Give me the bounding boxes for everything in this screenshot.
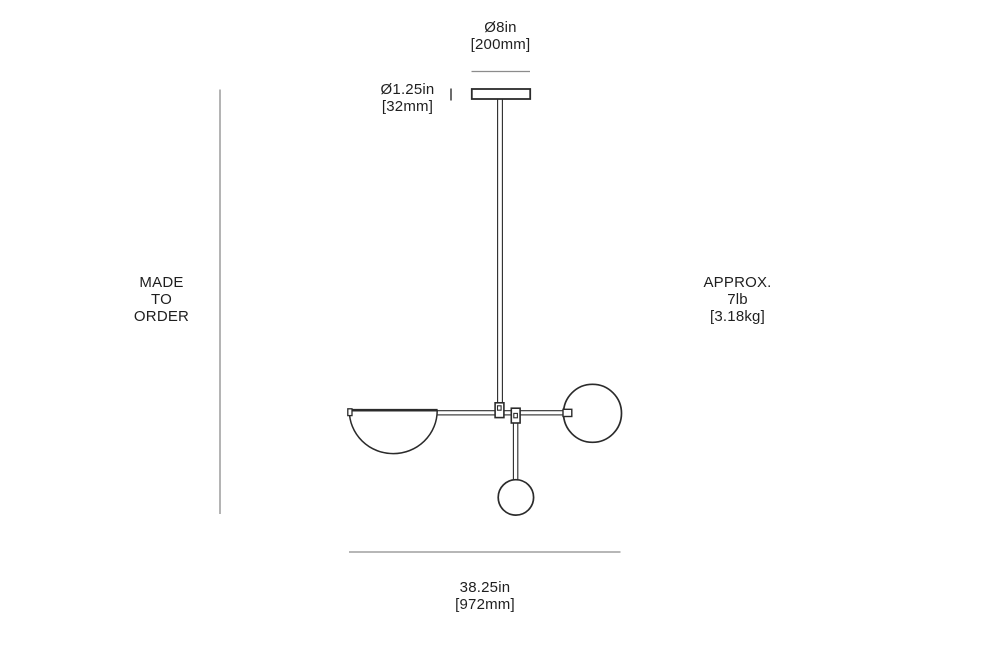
made-to-order-label: MADE TO ORDER [134,274,189,325]
weight-line1: APPROX. [703,274,771,291]
made-to-order-line1: MADE [134,274,189,291]
stem-diameter-metric: [32mm] [381,98,435,115]
stem-rod [498,99,503,404]
bowl-rim-end-cap [348,409,352,416]
upper-connector-hole [498,406,502,410]
overall-width-label: 38.25in [972mm] [455,579,515,613]
ceiling-canopy [472,89,530,99]
drop-rod [513,422,517,481]
lower-connector-hole [514,413,518,417]
line-drawing [0,0,1000,666]
small-globe-shade [498,480,533,515]
arm-end-cap [563,409,572,416]
pendant-fixture [348,89,622,515]
overall-width-inches: 38.25in [455,579,515,596]
canopy-diameter-metric: [200mm] [471,36,531,53]
bowl-shade [349,411,437,454]
made-to-order-line3: ORDER [134,308,189,325]
stem-diameter-label: Ø1.25in [32mm] [381,81,435,115]
canopy-diameter-label: Ø8in [200mm] [471,19,531,53]
weight-label: APPROX. 7lb [3.18kg] [703,274,771,325]
pendant-lamp-dimension-diagram: Ø8in [200mm] Ø1.25in [32mm] MADE TO ORDE… [0,0,1000,666]
weight-line3: [3.18kg] [703,308,771,325]
made-to-order-line2: TO [134,291,189,308]
overall-width-metric: [972mm] [455,596,515,613]
weight-line2: 7lb [703,291,771,308]
canopy-diameter-inches: Ø8in [471,19,531,36]
stem-diameter-inches: Ø1.25in [381,81,435,98]
